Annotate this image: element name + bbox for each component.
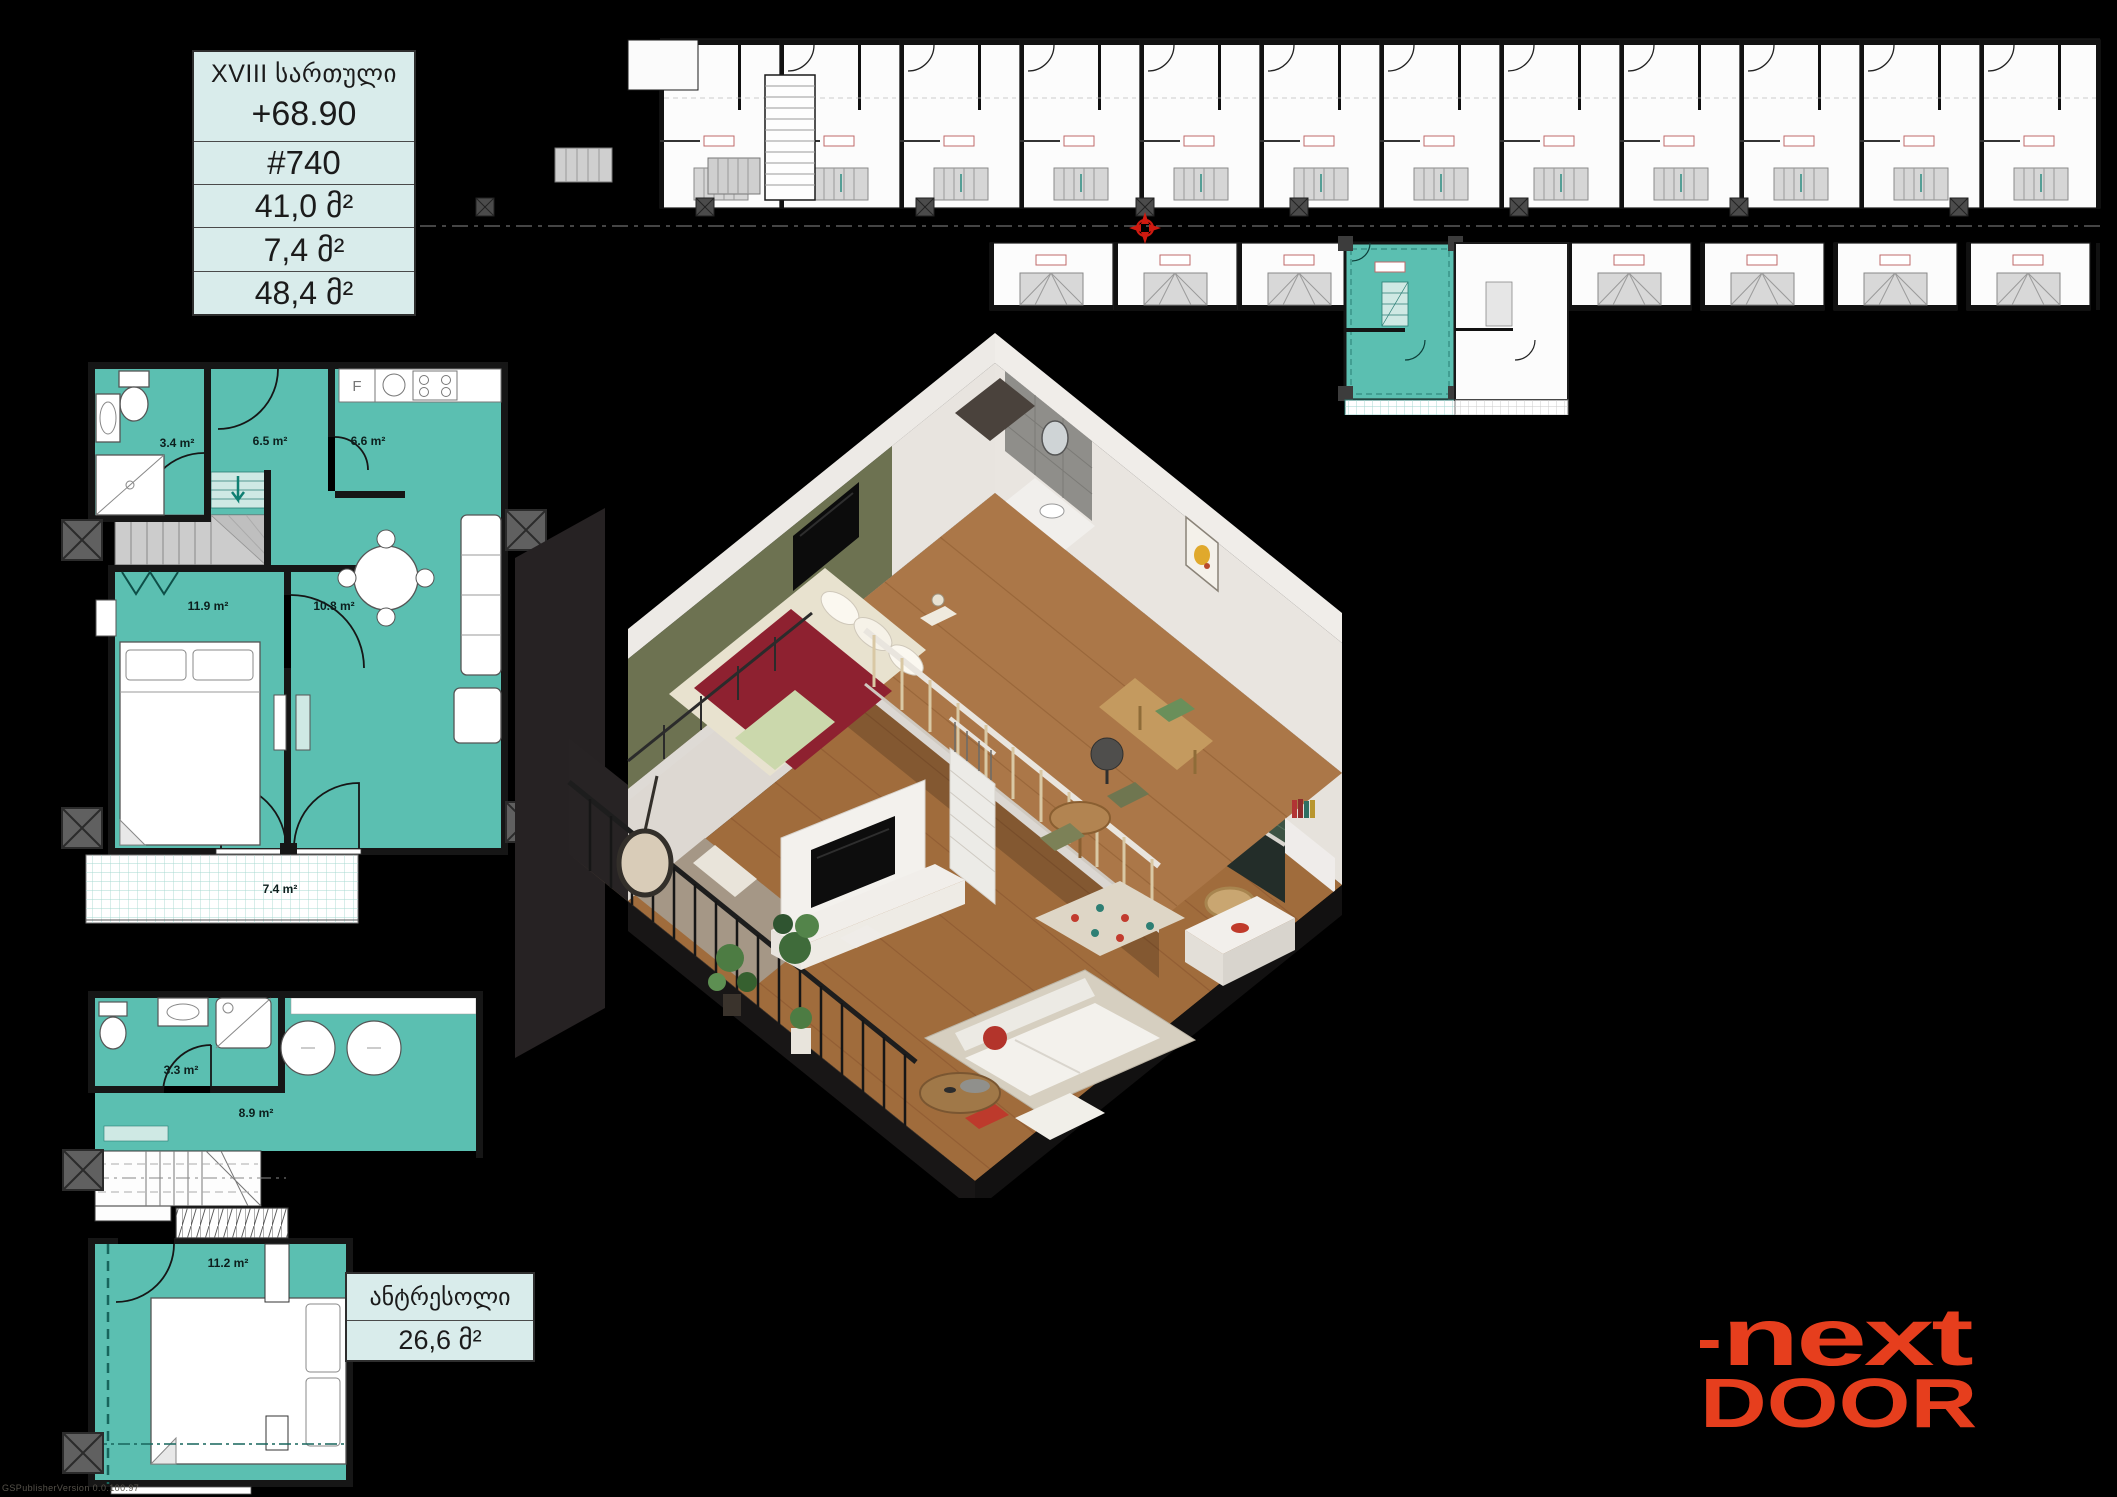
antresol-area: 26,6 მ²: [347, 1321, 533, 1360]
fridge-label: F: [352, 378, 361, 395]
brand-line2: DOOR: [1700, 1370, 2117, 1436]
living-area-row: 41,0 მ²: [194, 184, 414, 227]
logo-dash-icon: [1700, 1340, 1719, 1348]
antresol-bedroom-label: 11.2 m²: [208, 1256, 249, 1270]
bathroom-area-label: 3.4 m²: [160, 436, 195, 450]
antresol-wardrobe: [176, 1208, 288, 1238]
balcony-area-label: 7.4 m²: [263, 882, 298, 896]
antresol-title: ანტრესოლი: [347, 1274, 533, 1321]
kitchen-area-label: 6.6 m²: [351, 434, 386, 448]
antresol-plan: 3.3 m² 8.9 m² 11.2 m²: [56, 986, 496, 1497]
antresol-hall-label: 8.9 m²: [239, 1106, 274, 1120]
overview-top-units: [660, 38, 2100, 208]
floor-label: XVIII სართული: [194, 59, 414, 89]
total-area-row: 48,4 მ²: [194, 271, 414, 314]
watermark: GSPublisherVersion 0.0.100.97: [2, 1483, 139, 1493]
antresol-bathroom-label: 3.3 m²: [164, 1063, 199, 1077]
overview-neighbor-unit: [1455, 243, 1568, 415]
coffee-table: [920, 1073, 1000, 1113]
unit-number-row: #740: [194, 141, 414, 184]
floor-row: XVIII სართული +68.90: [194, 52, 414, 141]
unit-number: #740: [194, 144, 414, 182]
main-level-plan: F: [56, 350, 556, 940]
apartment-3d-render: [495, 318, 1375, 1198]
elevation-value: +68.90: [194, 95, 414, 134]
main-plan-balcony: [86, 855, 358, 923]
north-marker: [1129, 212, 1161, 244]
brand-line1: next: [1700, 1306, 2117, 1370]
antresol-label-box: ანტრესოლი 26,6 მ²: [345, 1272, 535, 1362]
hall-area-label: 6.5 m²: [253, 434, 288, 448]
total-area-value: 48,4 მ²: [194, 274, 414, 312]
living-area-label: 10.8 m²: [313, 599, 354, 613]
kitchen-fixtures: F: [339, 369, 501, 402]
living-area-value: 41,0 მ²: [194, 187, 414, 225]
balcony-area-value: 7,4 მ²: [194, 231, 414, 269]
brand-logo: next DOOR: [1700, 1306, 2040, 1436]
balcony-area-row: 7,4 მ²: [194, 227, 414, 270]
bedroom-area-label: 11.9 m²: [188, 599, 229, 613]
floorplan-sheet: XVIII სართული +68.90 #740 41,0 მ² 7,4 მ²…: [0, 0, 2117, 1497]
unit-info-table: XVIII სართული +68.90 #740 41,0 მ² 7,4 მ²…: [192, 50, 416, 316]
